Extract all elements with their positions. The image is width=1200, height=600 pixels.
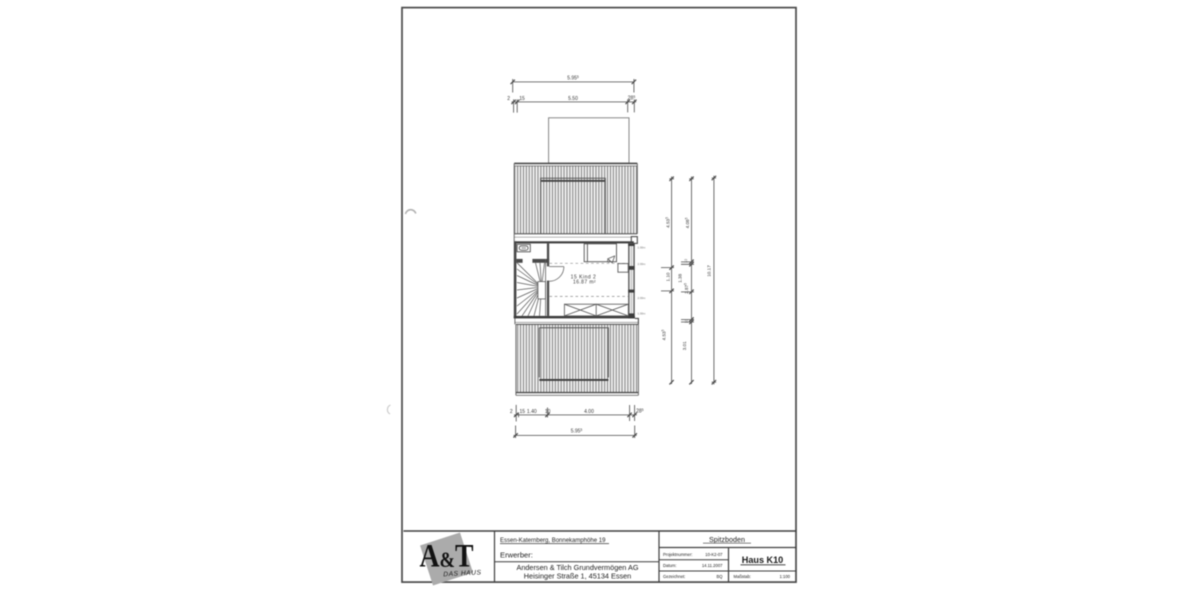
svg-text:5.50: 5.50 xyxy=(568,96,578,102)
svg-text:Datum:: Datum: xyxy=(663,563,677,568)
svg-text:2.00m: 2.00m xyxy=(638,296,646,300)
svg-text:Heisinger Straße 1, 45134 Esse: Heisinger Straße 1, 45134 Essen xyxy=(524,571,632,580)
svg-text:14.11.2007: 14.11.2007 xyxy=(702,563,723,568)
svg-text:BQ: BQ xyxy=(716,574,723,579)
svg-text:Maßstab:: Maßstab: xyxy=(734,574,751,579)
svg-text:Erwerber:: Erwerber: xyxy=(500,550,533,559)
svg-text:3.01: 3.01 xyxy=(682,341,687,350)
svg-text:2: 2 xyxy=(507,96,510,102)
svg-text:10: 10 xyxy=(684,259,688,263)
svg-text:Haus K10: Haus K10 xyxy=(742,555,783,565)
svg-text:15: 15 xyxy=(520,409,526,415)
svg-text:1:100: 1:100 xyxy=(780,574,791,579)
svg-text:1.38: 1.38 xyxy=(678,273,683,282)
svg-text:10: 10 xyxy=(545,409,551,415)
svg-text:16.87 m²: 16.87 m² xyxy=(573,280,596,286)
svg-text:1.40: 1.40 xyxy=(527,409,537,415)
svg-text:1.00m: 1.00m xyxy=(638,246,646,250)
svg-text:10: 10 xyxy=(684,319,688,323)
svg-text:10.17: 10.17 xyxy=(707,265,712,277)
svg-text:15: 15 xyxy=(519,96,525,102)
svg-text:1.10: 1.10 xyxy=(666,272,671,281)
svg-text:Spitzboden: Spitzboden xyxy=(709,535,745,544)
svg-text:1.00m: 1.00m xyxy=(638,312,646,316)
svg-text:Projektnummer:: Projektnummer: xyxy=(663,552,693,557)
svg-text:2: 2 xyxy=(510,409,513,415)
svg-text:Essen-Katernberg, Bonnekamphöh: Essen-Katernberg, Bonnekamphöhe 19 xyxy=(500,538,606,544)
svg-text:4.00: 4.00 xyxy=(584,409,594,415)
svg-text:2.00m: 2.00m xyxy=(638,262,646,266)
svg-text:10-K2-07: 10-K2-07 xyxy=(705,552,723,557)
svg-text:Gezeichnet:: Gezeichnet: xyxy=(663,574,685,579)
